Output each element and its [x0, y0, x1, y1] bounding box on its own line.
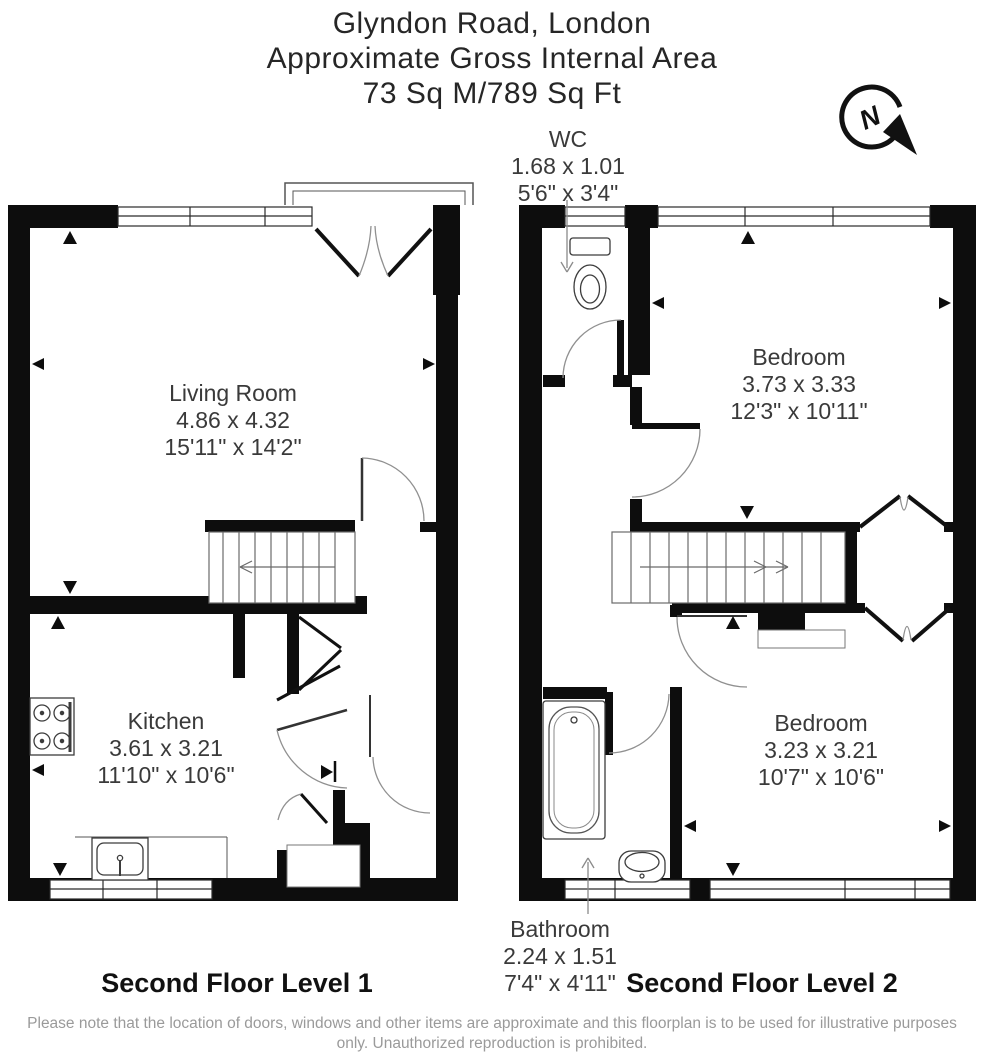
understairs-step-outline: [758, 630, 845, 648]
door-wc-arc: [563, 320, 621, 378]
door-kitchen: [277, 710, 347, 788]
window-wc: [565, 207, 625, 226]
door-hall: [370, 695, 430, 813]
plan-level-1: [8, 183, 473, 901]
bedroom-2-label: Bedroom 3.23 x 3.21 10'7" x 10'6": [758, 710, 884, 791]
staircase-level-2: [612, 532, 845, 603]
toilet-symbol: [570, 238, 610, 309]
bedroom-1-label: Bedroom 3.73 x 3.33 12'3" x 10'11": [730, 344, 867, 425]
title-block: Glyndon Road, London Approximate Gross I…: [0, 6, 984, 111]
double-door-terrace: [316, 226, 431, 276]
floorplan-page: N Glyndon Road, London Approximate Gross…: [0, 0, 984, 1056]
door-stairwell: [362, 458, 424, 521]
entry-recess: [287, 845, 360, 901]
living-room-label: Living Room 4.86 x 4.32 15'11" x 14'2": [164, 380, 301, 461]
window-bedroom-2: [710, 880, 950, 899]
floorplan-drawing: N: [0, 0, 984, 1056]
door-bedroom-1-arc: [632, 429, 700, 497]
title-area-value: 73 Sq M/789 Sq Ft: [0, 76, 984, 111]
level-1-label: Second Floor Level 1: [101, 968, 373, 999]
terrace-outline: [285, 183, 473, 205]
staircase-level-1: [209, 532, 355, 603]
door-entry: [278, 794, 327, 823]
bathroom-label: Bathroom 2.24 x 1.51 7'4" x 4'11": [503, 916, 617, 997]
window-bathroom: [565, 880, 690, 899]
closet-doors-lower: [865, 608, 950, 641]
sink-symbol: [92, 838, 148, 880]
door-bathroom-arc: [609, 694, 669, 753]
window-living-room: [118, 207, 312, 226]
cupboard-doors-understairs: [277, 617, 341, 700]
title-area-caption: Approximate Gross Internal Area: [0, 41, 984, 76]
stove-symbol: [30, 698, 74, 755]
wc-label: WC 1.68 x 1.01 5'6" x 3'4": [511, 126, 625, 207]
bathtub-symbol: [543, 701, 605, 839]
disclaimer-text: Please note that the location of doors, …: [12, 1014, 972, 1054]
level-2-label: Second Floor Level 2: [626, 968, 898, 999]
title-address: Glyndon Road, London: [0, 6, 984, 41]
window-kitchen: [50, 880, 212, 899]
window-bedroom-1: [658, 207, 930, 226]
kitchen-label: Kitchen 3.61 x 3.21 11'10" x 10'6": [97, 708, 234, 789]
closet-doors-upper: [860, 496, 948, 527]
basin-symbol: [619, 851, 665, 882]
plan-level-2: [519, 200, 976, 914]
